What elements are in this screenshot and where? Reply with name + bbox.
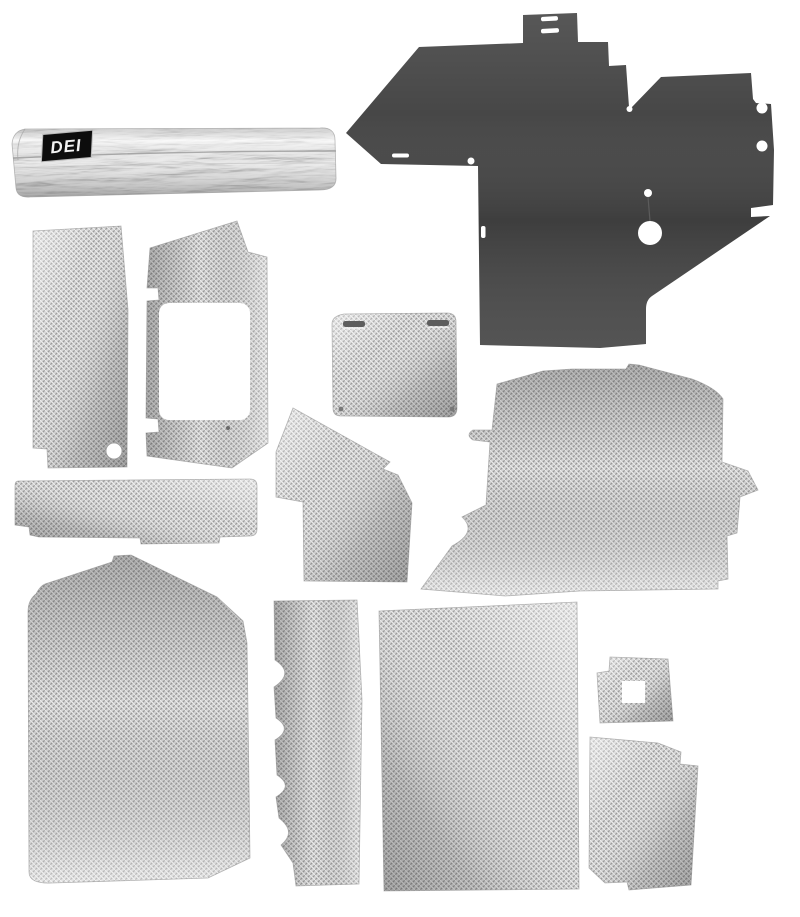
- square-cutout: [622, 681, 645, 703]
- slotted-square-panel: [332, 313, 457, 417]
- small-hole: [644, 189, 652, 197]
- corner-rivet: [339, 407, 344, 412]
- brand-logo-text: DEI: [50, 136, 83, 158]
- tab-slot: [541, 16, 558, 21]
- bolt-hole: [757, 141, 768, 152]
- large-hole: [638, 221, 662, 245]
- pin-hole: [226, 426, 230, 430]
- mount-slot: [427, 320, 449, 326]
- corner-rivet: [450, 407, 455, 412]
- tab-slot: [541, 28, 559, 33]
- kit-photo-svg: DEI: [0, 0, 800, 917]
- edge-slot: [481, 226, 486, 238]
- bolt-hole: [757, 103, 768, 114]
- small-hole: [468, 158, 475, 165]
- dei-label: DEI: [39, 130, 95, 162]
- slot-highlight: [428, 327, 449, 329]
- mount-slot: [343, 321, 365, 327]
- product-photo: DEI: [0, 0, 800, 917]
- small-hole: [627, 106, 633, 112]
- round-hole: [106, 443, 122, 459]
- foil-roll: DEI: [12, 128, 336, 197]
- large-floor-panel-left: [28, 555, 250, 883]
- edge-slot: [392, 154, 409, 158]
- slot-highlight: [344, 328, 365, 330]
- window-cutout-panel: [146, 221, 268, 468]
- large-rectangle-panel: [379, 602, 579, 891]
- window-cutout: [159, 303, 250, 420]
- long-sill-strip: [15, 479, 257, 544]
- tall-side-panel: [33, 226, 128, 468]
- scalloped-edge-strip: [274, 600, 362, 886]
